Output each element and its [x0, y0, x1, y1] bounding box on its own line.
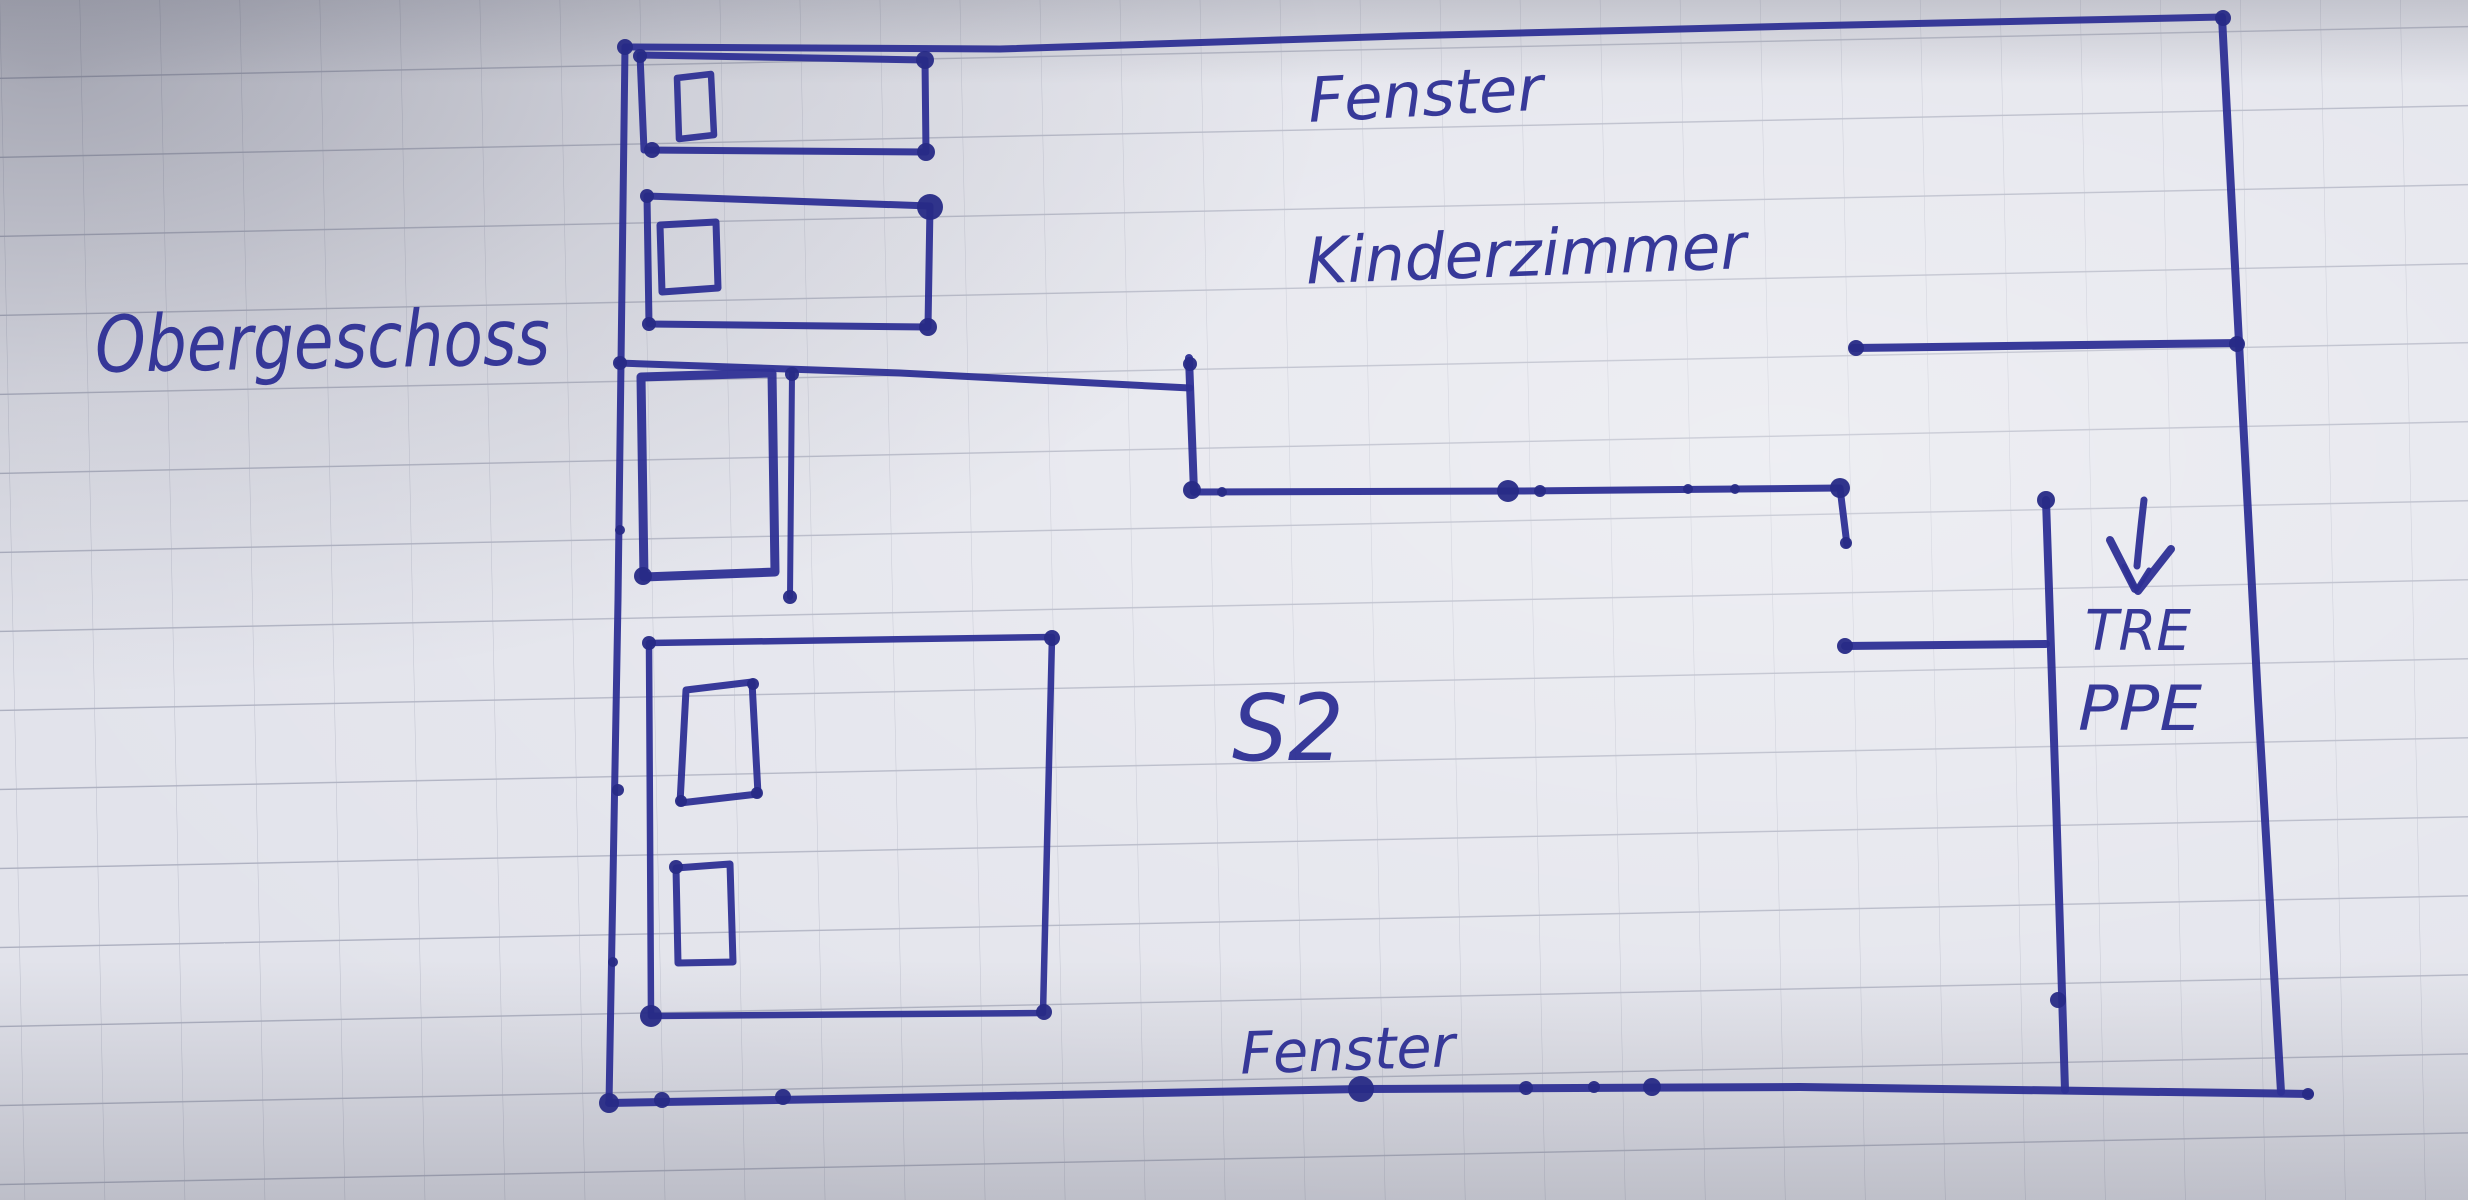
- ink-dot: [1683, 484, 1693, 494]
- ink-dot: [919, 318, 937, 336]
- ink-dot: [1217, 487, 1227, 497]
- floorplan-photo: Obergeschoss Fenster Kinderzimmer S2 TRE…: [0, 0, 2468, 1200]
- ink-dot: [617, 39, 633, 55]
- label-window-top: Fenster: [1306, 51, 1548, 136]
- ink-dot: [2037, 491, 2055, 509]
- ink-dot: [642, 636, 656, 650]
- label-stairs-line2: PPE: [2078, 672, 2203, 745]
- ink-dot: [1840, 537, 1852, 549]
- ink-dot: [783, 590, 797, 604]
- label-stairs-line1: TRE: [2085, 599, 2192, 664]
- ink-dot: [642, 317, 656, 331]
- ink-dot: [1643, 1078, 1661, 1096]
- ink-dot: [654, 1092, 670, 1108]
- wall-step-vertical: [1189, 358, 1194, 492]
- ink-dot: [613, 356, 627, 370]
- ink-dot: [1497, 480, 1519, 502]
- ink-dot: [1044, 630, 1060, 646]
- ink-dot: [751, 787, 763, 799]
- ink-dot: [599, 1093, 619, 1113]
- ink-dot: [1830, 478, 1850, 498]
- ink-dot: [634, 567, 652, 585]
- label-room-kinderzimmer: Kinderzimmer: [1305, 210, 1751, 299]
- ink-dot: [1837, 638, 1853, 654]
- ink-dot: [612, 784, 624, 796]
- ink-dot: [1183, 481, 1201, 499]
- ink-dot: [2229, 336, 2245, 352]
- ink-dot: [644, 142, 660, 158]
- ink-dot: [669, 860, 683, 874]
- ink-dot: [2215, 10, 2231, 26]
- ink-dot: [675, 795, 687, 807]
- ink-dot: [640, 1005, 662, 1027]
- ink-dot: [1534, 485, 1546, 497]
- ink-dot: [1519, 1081, 1533, 1095]
- ink-dot: [785, 367, 799, 381]
- ink-dot: [608, 957, 618, 967]
- ink-dot: [2050, 992, 2066, 1008]
- ink-dot: [1183, 357, 1197, 371]
- ink-dot: [615, 525, 625, 535]
- label-room-s2: S2: [1232, 675, 1344, 782]
- wall-treppe-stub: [1845, 644, 2046, 646]
- ink-dot: [1848, 340, 1864, 356]
- ink-dot: [1036, 1004, 1052, 1020]
- ink-dot: [775, 1089, 791, 1105]
- ink-dot: [640, 189, 654, 203]
- wardrobe-side-line: [790, 374, 792, 597]
- ink-dot: [1588, 1081, 1600, 1093]
- ink-dot: [1730, 484, 1740, 494]
- floorplan-canvas: Obergeschoss Fenster Kinderzimmer S2 TRE…: [0, 0, 2468, 1200]
- ink-dot: [747, 678, 759, 690]
- wall-landing-top: [1853, 343, 2240, 348]
- ink-dot: [917, 143, 935, 161]
- ink-dot: [633, 49, 647, 63]
- label-floor-title: Obergeschoss: [94, 293, 551, 391]
- ink-dot: [2302, 1088, 2314, 1100]
- ink-dot: [916, 51, 934, 69]
- label-window-bottom: Fenster: [1239, 1012, 1459, 1088]
- ink-dot: [917, 194, 943, 220]
